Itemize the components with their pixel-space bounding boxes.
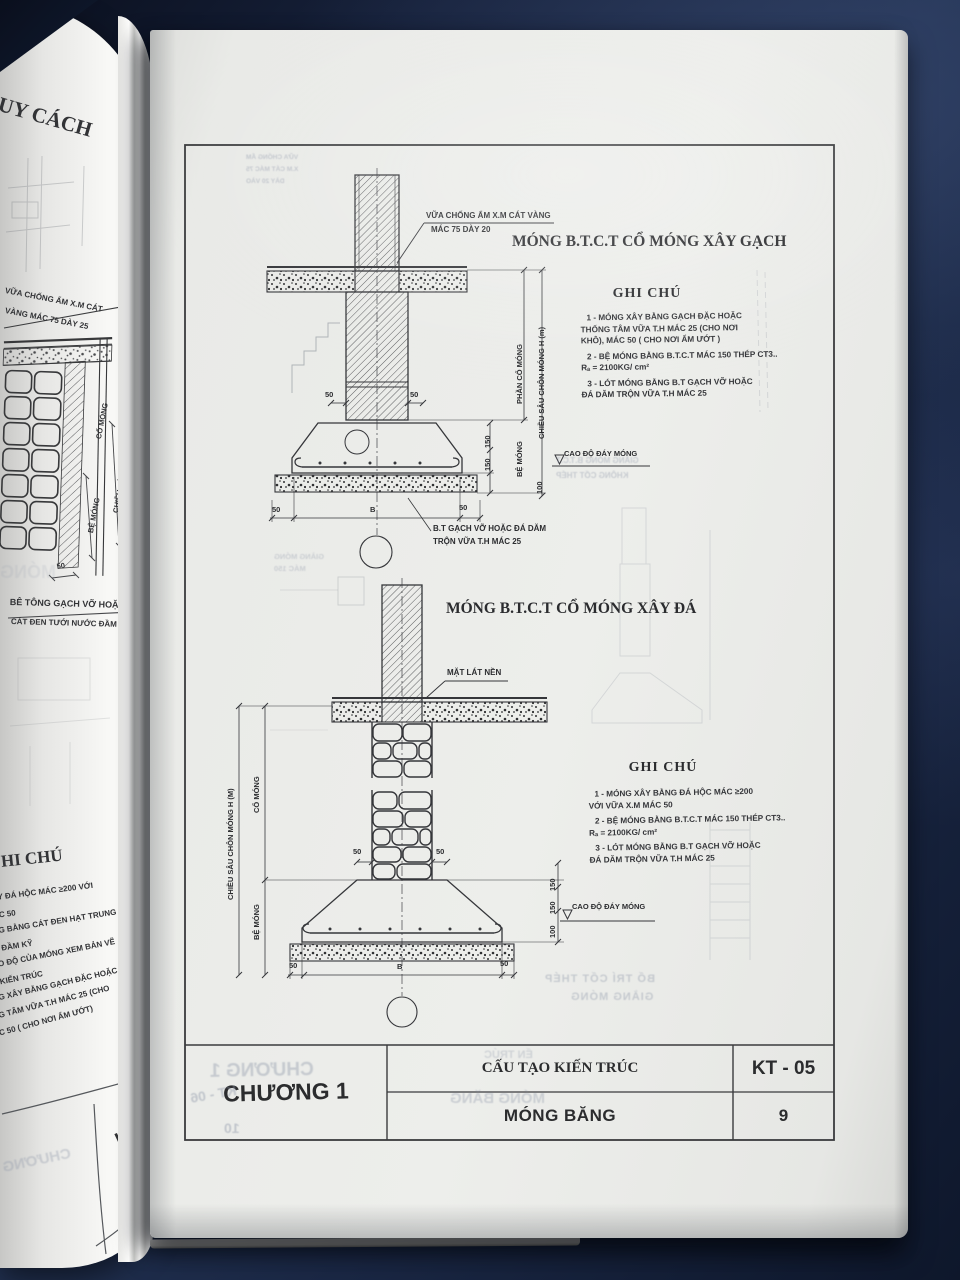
d1-dim-be-mong: BỆ MÓNG <box>515 441 524 477</box>
ghost-text: DÀY 20 VÀO <box>246 178 285 185</box>
title-block-page-number: 9 <box>733 1092 834 1140</box>
sheet-frame <box>185 145 834 1140</box>
d1-dim-150b: 150 <box>483 458 492 471</box>
d1-dim-150a: 150 <box>483 435 492 448</box>
d1-dim-50-br: 50 <box>459 503 467 512</box>
left-wall-drawing <box>0 334 112 576</box>
ghost-text: VỮA CHỐNG ẨM <box>246 154 298 161</box>
d2-notes: 1 - MÓNG XÂY BẰNG ĐÁ HỘC MÁC ≥200 VỚI VỮ… <box>594 785 786 865</box>
d2-dim-50-left: 50 <box>353 847 361 856</box>
d2-dim-chieu-sau: CHIỀU SÂU CHÔN MÓNG H (M) <box>226 788 235 900</box>
d2-dim-be-mong: BỆ MÓNG <box>252 904 261 940</box>
d1-lot-line2: TRỘN VỮA T.H MÁC 25 <box>433 537 521 546</box>
d1-title: MÓNG B.T.C.T CỔ MÓNG XÂY GẠCH <box>512 233 752 251</box>
ghost-text: KHÔNG CỐT THÉP <box>556 471 628 480</box>
ghost-text: MÓNG BĂNG <box>450 1090 545 1107</box>
d2-dim-100: 100 <box>548 925 557 938</box>
d1-notes: 1 - MÓNG XÂY BẰNG GẠCH ĐẶC HOẶC THỐNG TÂ… <box>586 310 778 401</box>
ghost-text: X.M CÁT MÁC 75 <box>246 166 298 173</box>
d2-dim-50-right: 50 <box>436 847 444 856</box>
d2-dim-150a: 150 <box>548 878 557 891</box>
d2-title: MÓNG B.T.C.T CỔ MÓNG XÂY ĐÁ <box>446 600 674 618</box>
ghost-text: BỐ TRÍ CỐT THÉP <box>544 973 655 985</box>
d2-dim-B: B <box>397 962 402 971</box>
ghost-text: MÁC 150 <box>274 564 306 573</box>
d2-dim-co-mong: CỔ MÓNG <box>252 776 261 813</box>
d1-dim-50-right: 50 <box>410 390 418 399</box>
d2-cao-do-label: CAO ĐỘ ĐÁY MÓNG <box>572 902 645 911</box>
d1-dim-100: 100 <box>535 481 544 494</box>
left-page-faint-sketch <box>6 156 84 272</box>
bottom-page-edge <box>150 1236 580 1248</box>
d1-dim-50-left: 50 <box>325 390 333 399</box>
d1-dim-chieu-sau: CHIỀU SÂU CHÔN MÓNG H (m) <box>537 327 546 439</box>
ghost-text: CHƯƠNG 1 <box>210 1059 314 1083</box>
right-book-page: VỮA CHỐNG ẨM X.M CÁT VÀNG MÁC 75 DÀY 20 … <box>150 30 908 1238</box>
ghost-text: 10 <box>224 1120 240 1136</box>
title-block-code: KT - 05 <box>733 1045 834 1092</box>
d1-callout-line1: VỮA CHỐNG ẨM X.M CÁT VÀNG <box>426 211 551 220</box>
d2-mat-lat-nen: MẶT LÁT NỀN <box>447 668 501 677</box>
d2-dim-150b: 150 <box>548 901 557 914</box>
left-dim-50: 50 <box>56 561 66 571</box>
note-line: Rₐ = 2100KG/ cm² <box>581 360 778 374</box>
d2-ghi-chu-heading: GHI CHÚ <box>618 760 708 776</box>
page-fore-edge-stack <box>118 16 154 1262</box>
ghost-text: GIẰNG MÓNG <box>274 552 324 561</box>
d1-lot-line1: B.T GẠCH VỠ HOẶC ĐÁ DĂM <box>433 524 546 533</box>
left-page-faint-lower <box>10 658 110 806</box>
note-line: KHÔ), MÁC 50 ( CHO NƠI ẨM ƯỚT ) <box>581 333 778 347</box>
d1-dim-50-bl: 50 <box>272 505 280 514</box>
d1-dim-phan-co-mong: PHẦN CỔ MÓNG <box>515 344 524 404</box>
book-photo-scene: UY CÁCH VỮA CHỐNG ẨM X.M CÁT VÀNG MÁC 75… <box>0 0 960 1280</box>
d2-dim-50-bl: 50 <box>289 961 297 970</box>
d1-callout-line2: MÁC 75 DÀY 20 <box>431 225 490 234</box>
ghost-text: ẾN TRÚC <box>484 1049 533 1061</box>
left-ghost-mong: MÓNG <box>0 562 56 583</box>
title-block-series: CẤU TẠO KIẾN TRÚC <box>387 1045 733 1092</box>
d2-dim-50-br: 50 <box>500 959 508 968</box>
title-block-sheet-title: MÓNG BĂNG <box>387 1092 733 1140</box>
d1-ghi-chu-heading: GHI CHÚ <box>602 286 692 302</box>
d1-dim-B: B <box>370 505 375 514</box>
ghost-text: GIẰNG MÓNG B.T.C.T <box>556 456 639 465</box>
ghost-text: GIẰNG MÓNG <box>570 991 653 1003</box>
